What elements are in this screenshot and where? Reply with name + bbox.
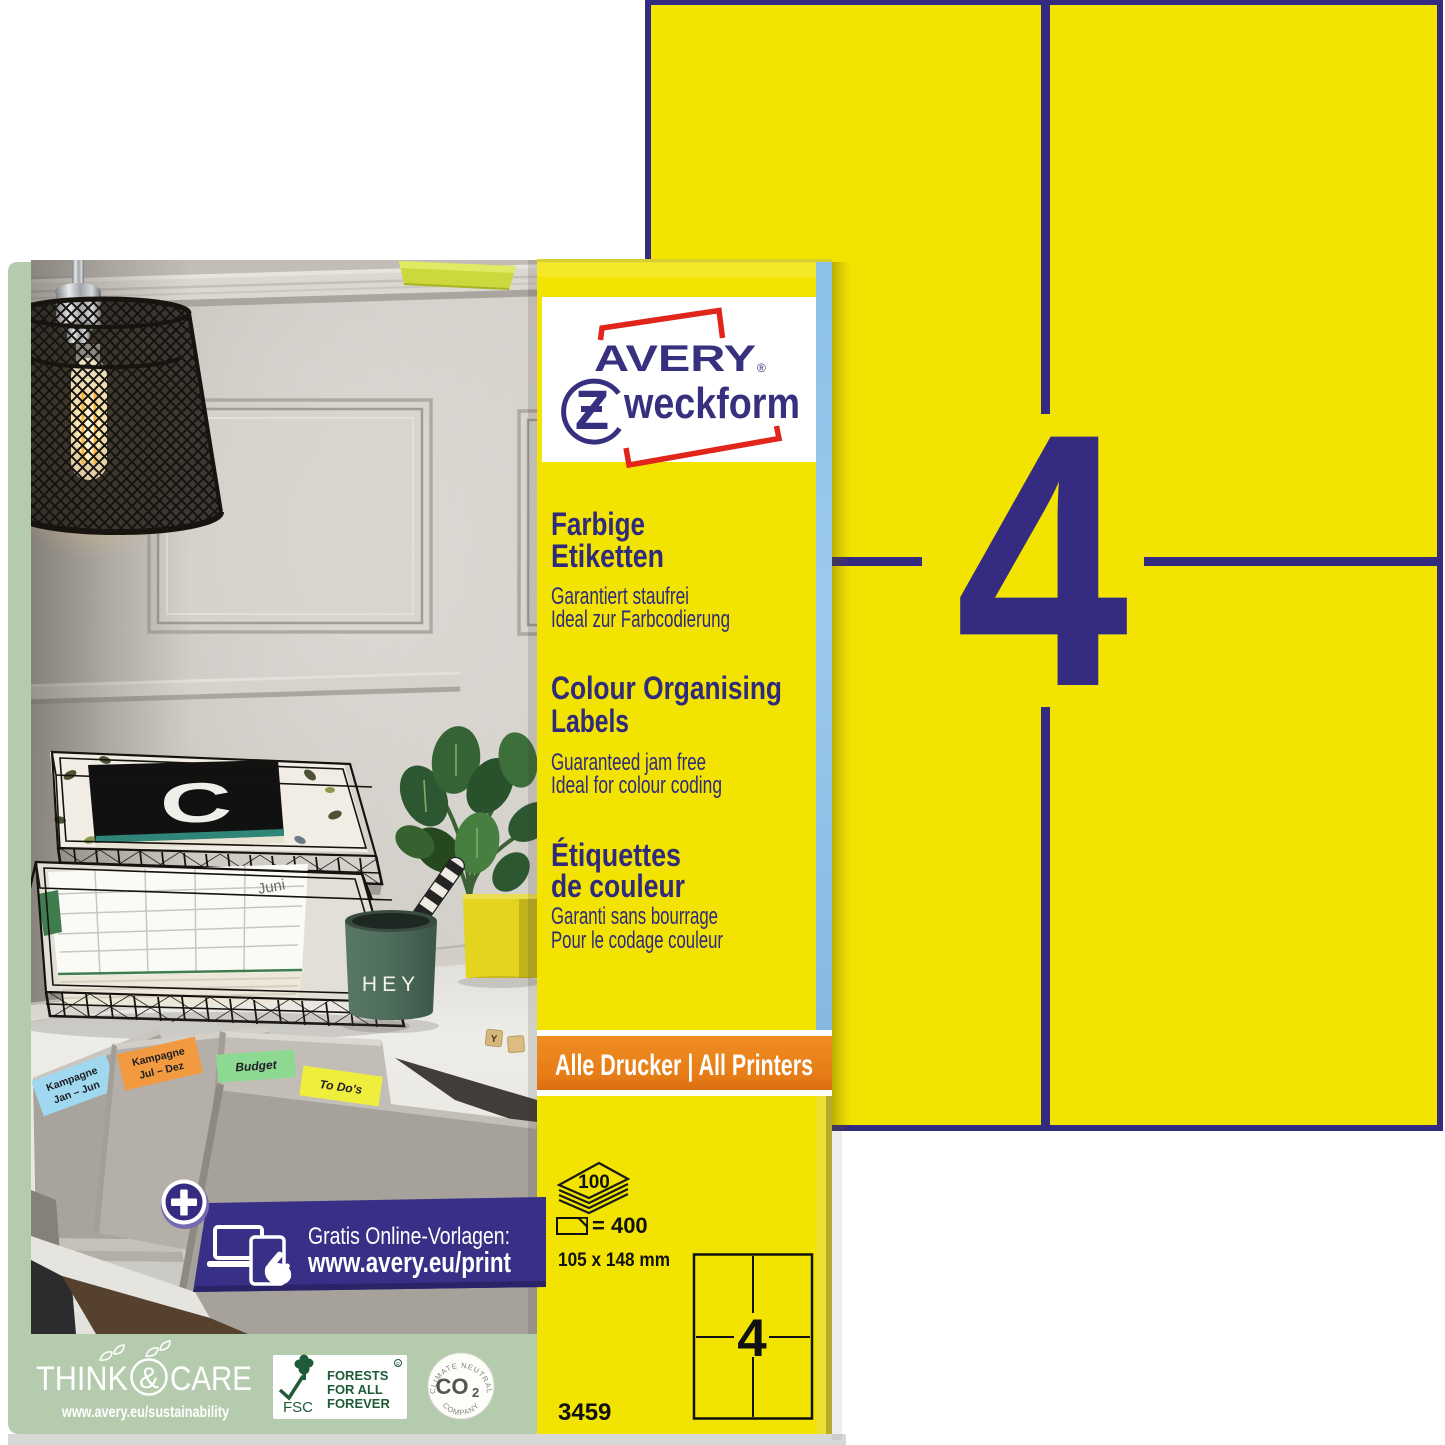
svg-text:www.avery.eu/print: www.avery.eu/print: [307, 1247, 511, 1279]
svg-text:weckform: weckform: [623, 379, 800, 428]
svg-text:FOR ALL: FOR ALL: [327, 1382, 383, 1397]
svg-text:Garanti sans bourrage: Garanti sans bourrage: [551, 903, 718, 930]
svg-text:3459: 3459: [558, 1399, 611, 1426]
svg-text:THINK: THINK: [36, 1360, 128, 1398]
svg-text:4: 4: [737, 1309, 767, 1368]
svg-text:2: 2: [472, 1385, 479, 1400]
svg-text:de couleur: de couleur: [551, 868, 685, 904]
svg-text:&: &: [139, 1362, 159, 1395]
svg-text:Pour le codage couleur: Pour le codage couleur: [551, 927, 723, 954]
svg-text:FORESTS: FORESTS: [327, 1368, 389, 1383]
svg-text:Ideal zur Farbcodierung: Ideal zur Farbcodierung: [551, 606, 730, 633]
svg-text:Farbige: Farbige: [551, 506, 645, 542]
svg-text:4: 4: [956, 358, 1131, 762]
svg-text:100: 100: [578, 1172, 610, 1193]
svg-text:®: ®: [757, 361, 766, 375]
svg-text:Budget: Budget: [235, 1058, 278, 1075]
svg-text:AVERY: AVERY: [594, 338, 756, 379]
svg-text:HEY: HEY: [362, 973, 420, 996]
svg-text:Etiketten: Etiketten: [551, 538, 664, 574]
svg-text:R: R: [396, 1362, 400, 1368]
svg-text:FSC: FSC: [283, 1399, 313, 1416]
svg-text:www.avery.eu/sustainability: www.avery.eu/sustainability: [61, 1404, 229, 1421]
svg-text:= 400: = 400: [592, 1213, 648, 1238]
svg-text:Ideal for colour coding: Ideal for colour coding: [551, 772, 722, 799]
svg-text:CARE: CARE: [170, 1360, 252, 1398]
svg-text:FOREVER: FOREVER: [327, 1396, 390, 1411]
svg-text:Gratis Online-Vorlagen:: Gratis Online-Vorlagen:: [308, 1223, 510, 1250]
svg-text:Labels: Labels: [551, 703, 629, 739]
svg-text:105 x 148 mm: 105 x 148 mm: [558, 1250, 670, 1271]
svg-text:Alle Drucker | All Printers: Alle Drucker | All Printers: [555, 1049, 813, 1082]
svg-text:Colour Organising: Colour Organising: [551, 670, 782, 706]
svg-text:CO: CO: [436, 1374, 469, 1399]
